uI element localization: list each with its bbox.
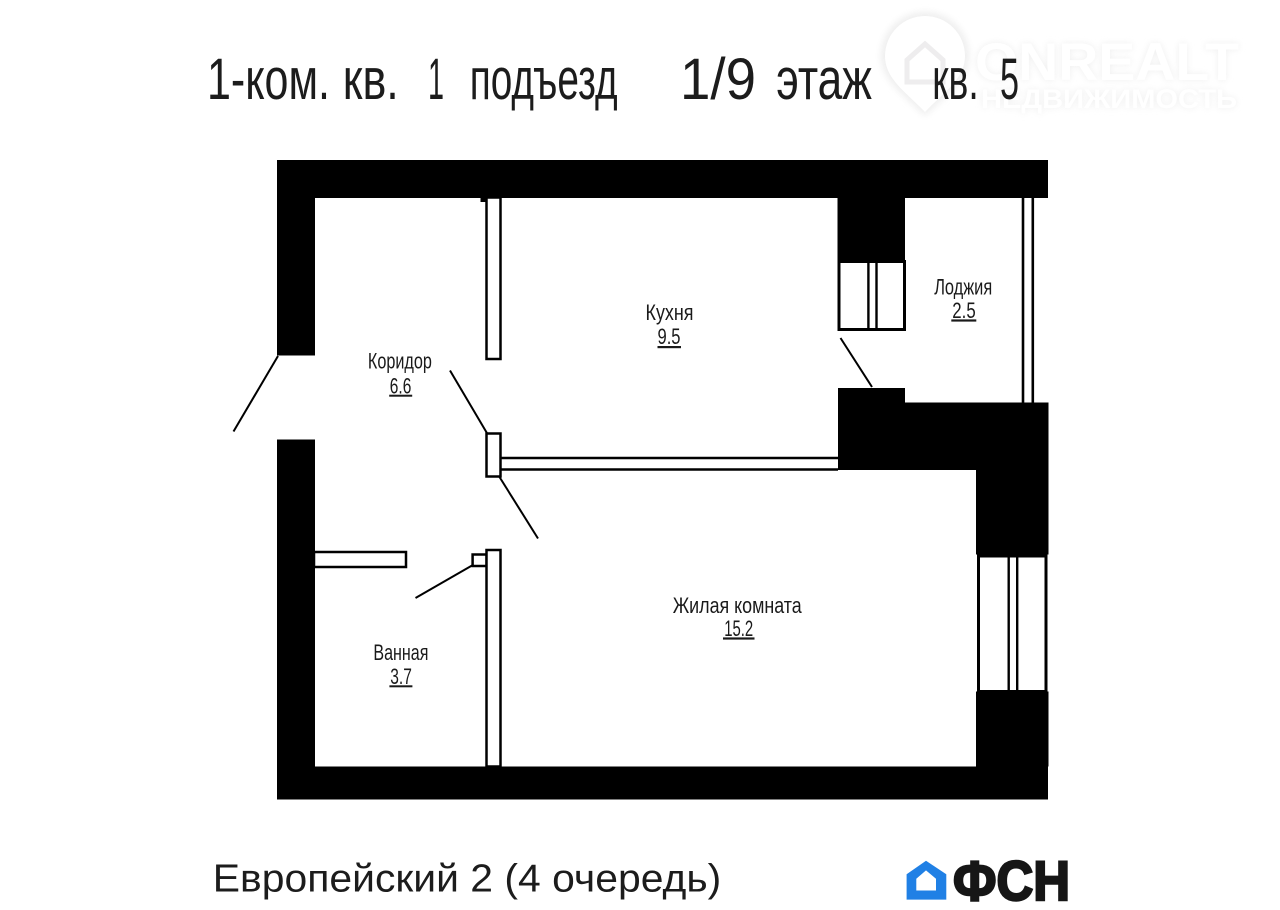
svg-text:Ванная: Ванная: [373, 640, 428, 665]
svg-text:подъезд: подъезд: [470, 47, 618, 112]
svg-text:Европейский 2 (4 очередь): Европейский 2 (4 очередь): [213, 858, 722, 901]
svg-text:1-ком.: 1-ком.: [207, 47, 330, 112]
svg-text:этаж: этаж: [776, 47, 872, 112]
svg-text:3.7: 3.7: [390, 664, 412, 689]
svg-text:Жилая комната: Жилая комната: [673, 593, 803, 618]
svg-text:ФСН: ФСН: [953, 849, 1070, 910]
svg-text:Коридор: Коридор: [368, 349, 432, 374]
svg-text:кв.: кв.: [343, 47, 399, 112]
svg-text:НЕДВИЖИМОСТЬ: НЕДВИЖИМОСТЬ: [981, 84, 1237, 114]
svg-text:кв.: кв.: [932, 47, 979, 112]
svg-text:5: 5: [1000, 47, 1019, 112]
svg-text:1: 1: [428, 47, 444, 112]
svg-text:1/9: 1/9: [680, 47, 756, 112]
svg-text:9.5: 9.5: [658, 324, 681, 349]
svg-text:Кухня: Кухня: [646, 300, 694, 325]
svg-text:Лоджия: Лоджия: [934, 275, 992, 300]
svg-text:2.5: 2.5: [952, 298, 975, 323]
